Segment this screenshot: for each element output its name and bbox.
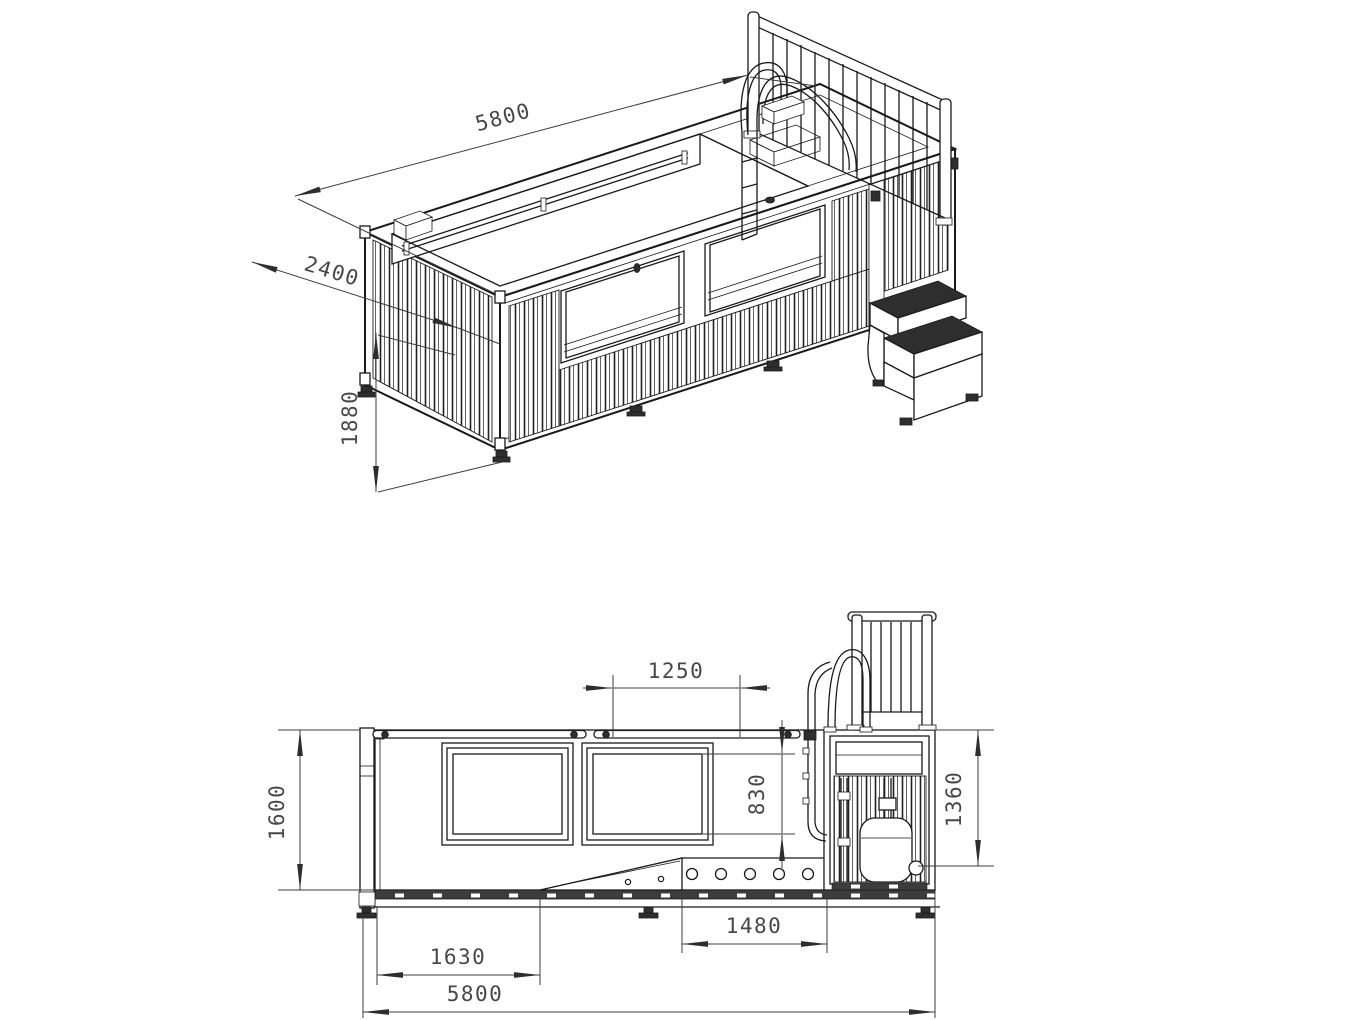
iso-rim-cleat (634, 264, 640, 273)
dim-label-iso-width: 2400 (301, 252, 362, 291)
dim-label-window-height: 830 (745, 773, 769, 815)
isometric-view: 5800 2400 1880 (252, 12, 982, 492)
dim-label-height-right: 1360 (942, 771, 966, 828)
side-window-1 (442, 743, 573, 845)
side-view: 1250 830 1600 1360 1630 (265, 612, 994, 1018)
dim-label-iso-height: 1880 (338, 390, 362, 447)
side-safety-railing (847, 612, 936, 730)
dim-side-section-left: 1630 (377, 892, 540, 985)
iso-drain-fitting (766, 197, 775, 203)
dim-side-section-holes: 1480 (682, 893, 827, 953)
dim-side-height-left: 1600 (265, 730, 375, 890)
side-feet (357, 907, 935, 918)
dim-side-window-width: 1250 (583, 659, 770, 737)
iso-entry-steps (868, 281, 982, 425)
dim-label-height-left: 1600 (265, 784, 289, 841)
side-base-strip (375, 890, 935, 899)
drawing-sheet: 5800 2400 1880 (0, 0, 1360, 1020)
side-window-2 (582, 743, 713, 845)
dim-label-overall-length: 5800 (447, 982, 504, 1006)
technical-drawing: 5800 2400 1880 (0, 0, 1360, 1020)
dim-label-section-left: 1630 (430, 945, 487, 969)
equipment-access-panel (836, 742, 922, 774)
dim-label-section-holes: 1480 (726, 914, 783, 938)
side-equipment-bay (824, 730, 929, 890)
dim-label-window-width: 1250 (648, 659, 705, 683)
dim-label-iso-length: 5800 (473, 98, 534, 136)
